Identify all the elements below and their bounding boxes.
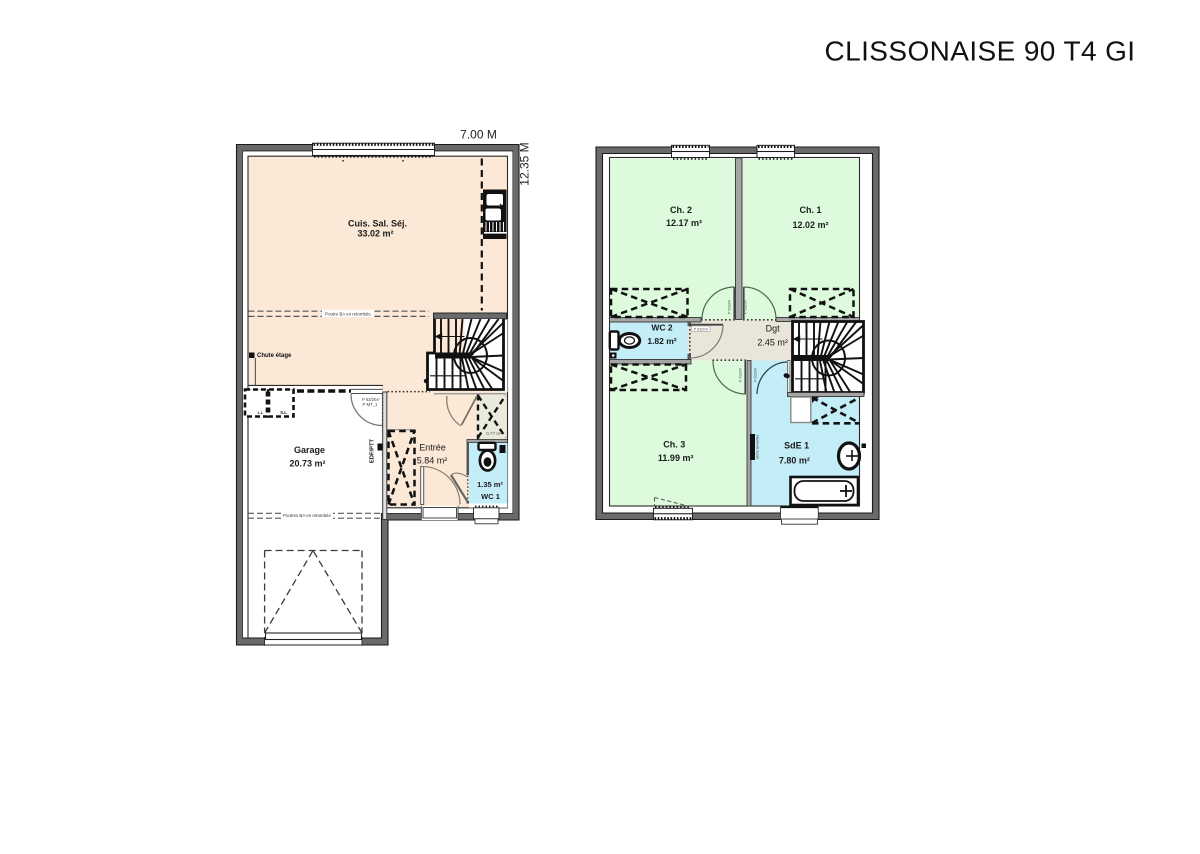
svg-text:SdE 1: SdE 1: [784, 441, 809, 451]
svg-text:7.80 m²: 7.80 m²: [779, 456, 810, 466]
svg-text:sèche serviettes: sèche serviettes: [756, 434, 760, 459]
svg-text:12.02 m²: 12.02 m²: [792, 220, 828, 230]
svg-text:Garage: Garage: [294, 445, 325, 455]
svg-text:P 63204: P 63204: [743, 300, 747, 314]
svg-text:12.35 M: 12.35 M: [518, 142, 532, 185]
svg-text:L.L: L.L: [258, 411, 264, 415]
svg-text:Ch. 1: Ch. 1: [799, 205, 821, 215]
svg-text:P 63204: P 63204: [739, 368, 743, 382]
svg-text:WC 2: WC 2: [651, 323, 673, 333]
svg-text:S.L: S.L: [280, 410, 287, 415]
svg-text:1.82 m²: 1.82 m²: [647, 336, 676, 346]
svg-text:Chute étage: Chute étage: [257, 353, 292, 359]
svg-text:12.17 m²: 12.17 m²: [666, 218, 702, 228]
svg-text:Dgt: Dgt: [766, 324, 781, 334]
svg-text:33.02 m²: 33.02 m²: [357, 228, 393, 238]
svg-text:Ch. 3: Ch. 3: [663, 440, 685, 450]
svg-text:20.73 m²: 20.73 m²: [289, 459, 325, 469]
svg-text:5.84 m²: 5.84 m²: [417, 456, 448, 466]
svg-text:Poutres BA en retombée: Poutres BA en retombée: [283, 513, 331, 518]
svg-text:0.77 m²: 0.77 m²: [486, 431, 502, 436]
svg-text:1.35 m²: 1.35 m²: [477, 480, 503, 489]
svg-text:P 63204: P 63204: [694, 327, 708, 331]
svg-text:Ch. 2: Ch. 2: [670, 205, 692, 215]
svg-text:WC 1: WC 1: [481, 492, 500, 501]
svg-text:Entrée: Entrée: [419, 443, 446, 453]
svg-text:2.45 m²: 2.45 m²: [757, 338, 788, 348]
svg-text:P 63204: P 63204: [753, 368, 757, 382]
svg-text:7.00 M: 7.00 M: [460, 128, 497, 142]
svg-text:CLISSONAISE 90 T4 GI: CLISSONAISE 90 T4 GI: [825, 36, 1136, 67]
svg-text:P-MT_1: P-MT_1: [363, 402, 379, 407]
svg-text:P 63204: P 63204: [728, 300, 732, 314]
svg-text:11.99 m²: 11.99 m²: [658, 453, 694, 463]
svg-text:EDF/PTT: EDF/PTT: [370, 438, 376, 463]
svg-text:Cuis. Sal. Séj.: Cuis. Sal. Séj.: [348, 219, 407, 229]
svg-text:Poutre BA en retombée: Poutre BA en retombée: [325, 311, 371, 316]
